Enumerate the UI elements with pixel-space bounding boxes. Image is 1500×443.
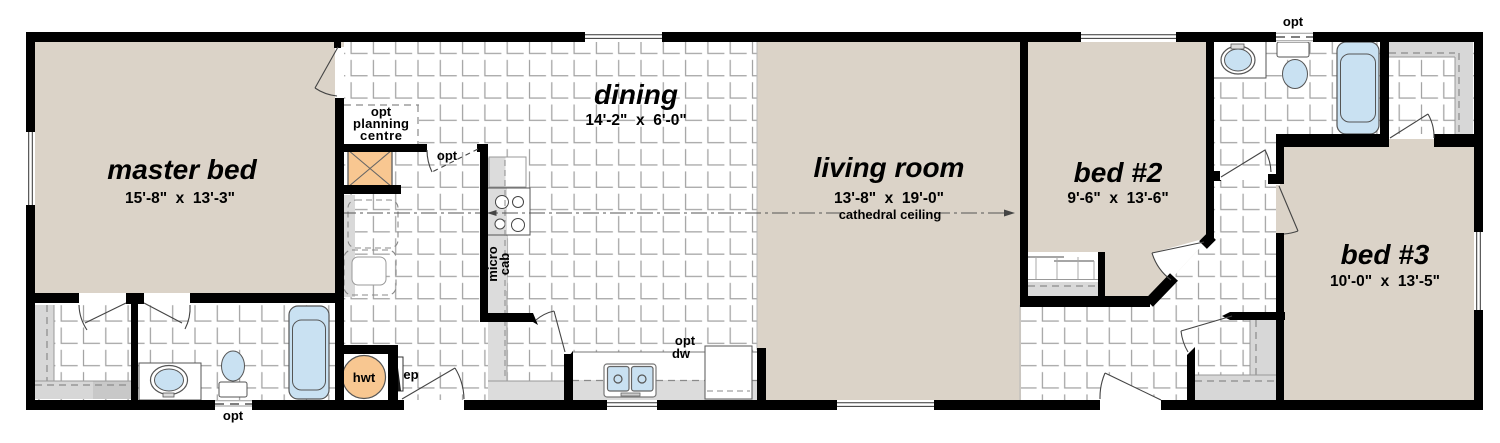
svg-text:dw: dw xyxy=(672,346,691,361)
svg-text:bed #3: bed #3 xyxy=(1341,239,1430,270)
svg-text:opt: opt xyxy=(1283,14,1304,29)
svg-text:hwt: hwt xyxy=(353,370,376,385)
svg-text:dining: dining xyxy=(594,79,678,110)
svg-text:cathedral ceiling: cathedral ceiling xyxy=(839,207,942,222)
svg-text:10'-0" x 13'-5": 10'-0" x 13'-5" xyxy=(1330,273,1440,290)
svg-text:13'-8" x 19'-0": 13'-8" x 19'-0" xyxy=(834,190,944,207)
svg-text:opt: opt xyxy=(223,408,244,423)
svg-text:centre: centre xyxy=(360,128,402,143)
svg-text:master bed: master bed xyxy=(107,154,257,185)
svg-text:cab: cab xyxy=(497,253,512,275)
svg-text:opt: opt xyxy=(437,148,458,163)
svg-text:living room: living room xyxy=(814,152,965,183)
svg-text:ep: ep xyxy=(403,367,418,382)
svg-text:14'-2" x 6'-0": 14'-2" x 6'-0" xyxy=(585,112,686,129)
svg-text:bed #2: bed #2 xyxy=(1074,157,1163,188)
svg-text:9'-6" x 13'-6": 9'-6" x 13'-6" xyxy=(1067,190,1168,207)
svg-text:15'-8" x 13'-3": 15'-8" x 13'-3" xyxy=(125,190,235,207)
